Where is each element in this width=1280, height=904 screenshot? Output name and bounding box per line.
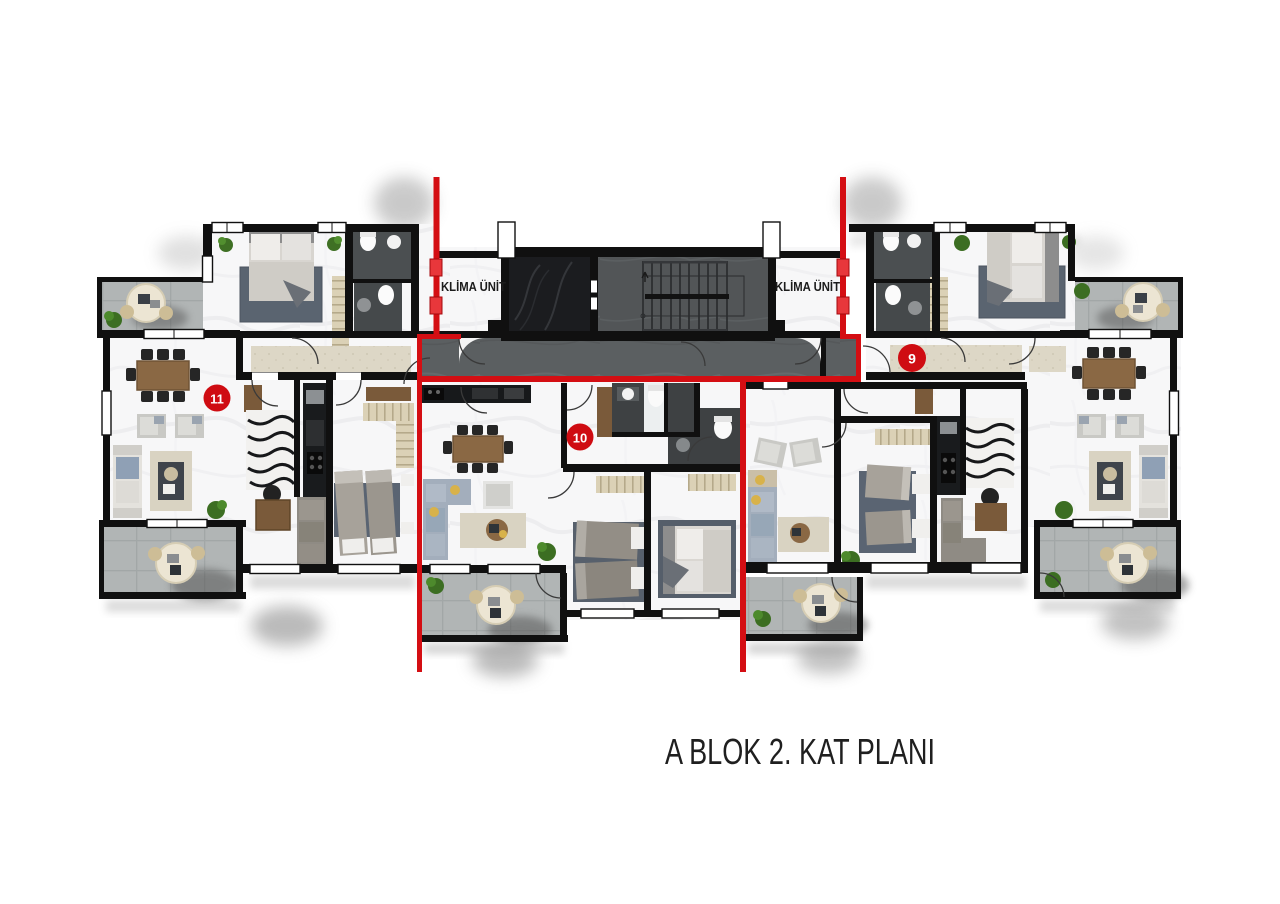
svg-text:KLİMA ÜNİT: KLİMA ÜNİT: [441, 279, 506, 294]
svg-text:11: 11: [210, 392, 224, 407]
svg-text:10: 10: [573, 431, 587, 446]
svg-text:A BLOK 2. KAT PLANI: A BLOK 2. KAT PLANI: [665, 731, 935, 772]
svg-text:9: 9: [908, 351, 916, 367]
svg-text:KLİMA ÜNİT: KLİMA ÜNİT: [775, 279, 840, 294]
